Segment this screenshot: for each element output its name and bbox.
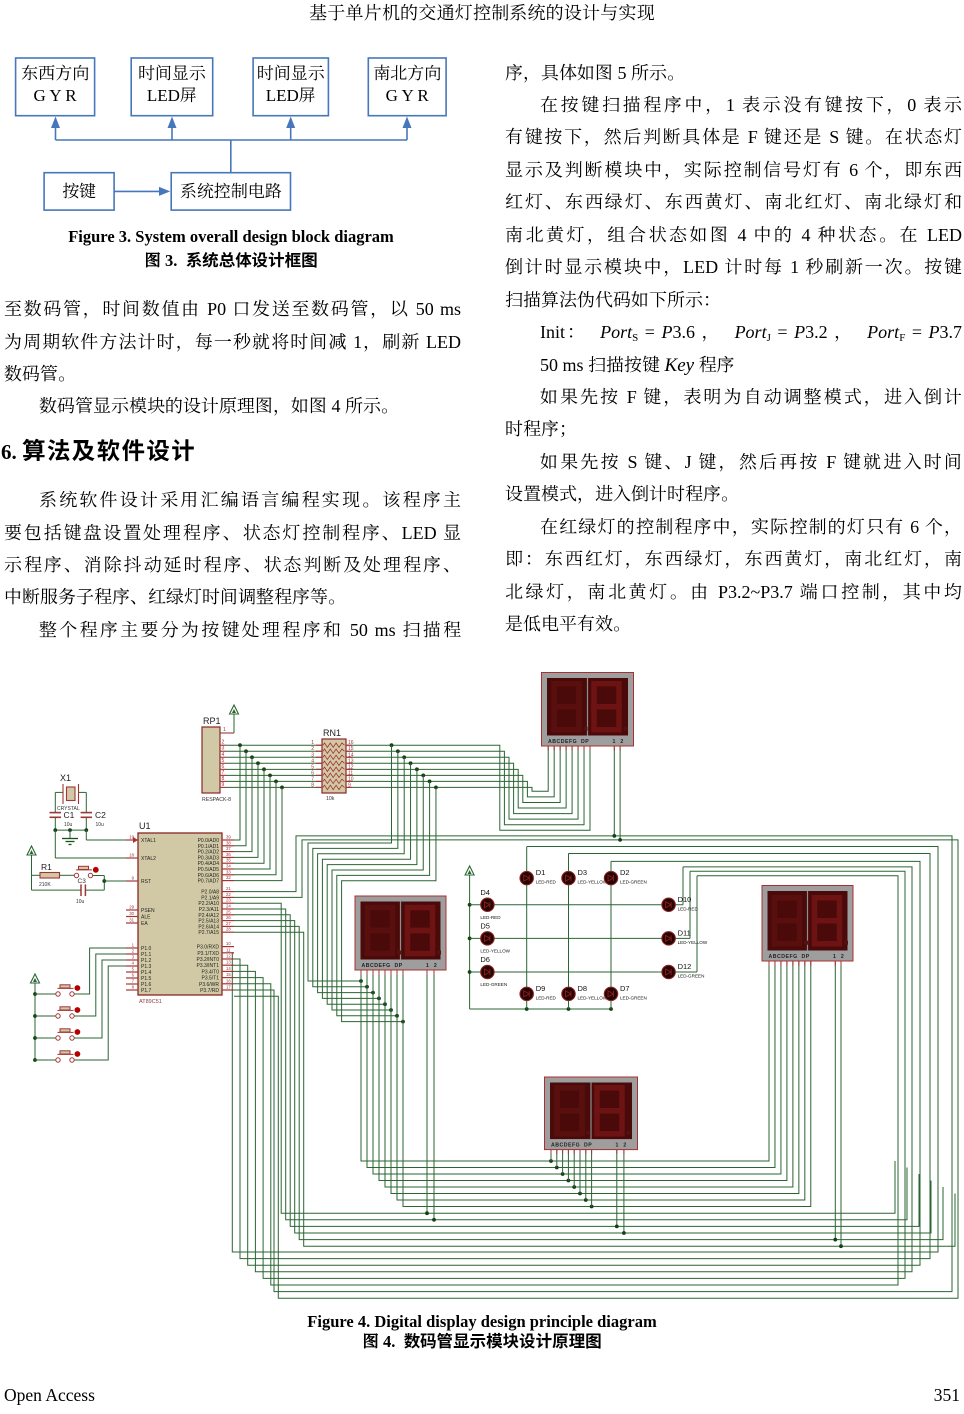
svg-text:26: 26 — [226, 915, 231, 920]
svg-text:ABCDEFG DP: ABCDEFG DP — [551, 1142, 592, 1148]
svg-text:9: 9 — [132, 876, 135, 881]
svg-text:34: 34 — [226, 864, 231, 869]
svg-text:27: 27 — [226, 921, 231, 926]
svg-text:D8: D8 — [578, 984, 588, 993]
svg-text:D12: D12 — [678, 962, 692, 971]
svg-text:P3.2/INT0: P3.2/INT0 — [196, 957, 219, 963]
svg-text:ABCDEFG DP: ABCDEFG DP — [769, 954, 810, 960]
svg-text:D11: D11 — [678, 928, 691, 937]
svg-text:XTAL2: XTAL2 — [141, 856, 156, 862]
svg-text:33: 33 — [226, 869, 231, 874]
svg-text:14: 14 — [226, 966, 231, 971]
svg-text:16: 16 — [226, 978, 231, 983]
svg-text:1: 1 — [223, 727, 226, 733]
svg-text:1 2: 1 2 — [426, 963, 439, 969]
svg-text:D9: D9 — [536, 984, 546, 993]
svg-text:LED-GREEN: LED-GREEN — [620, 880, 647, 885]
svg-text:LED-YELLOW: LED-YELLOW — [578, 880, 608, 885]
svg-text:LED-GREEN: LED-GREEN — [480, 982, 507, 987]
svg-text:5: 5 — [132, 967, 135, 972]
svg-text:P3.6/WR: P3.6/WR — [199, 982, 219, 988]
svg-text:LED-GREEN: LED-GREEN — [620, 995, 647, 1000]
svg-text:7: 7 — [132, 979, 135, 984]
svg-text:6: 6 — [132, 973, 135, 978]
svg-text:38: 38 — [226, 840, 231, 845]
svg-text:32: 32 — [226, 875, 231, 880]
svg-text:3: 3 — [132, 955, 135, 960]
svg-text:4: 4 — [132, 961, 135, 966]
svg-text:23: 23 — [226, 898, 231, 903]
svg-text:U1: U1 — [139, 821, 151, 831]
svg-text:C3: C3 — [78, 878, 87, 885]
svg-text:8: 8 — [132, 985, 135, 990]
svg-text:C2: C2 — [95, 810, 106, 820]
svg-text:RN1: RN1 — [323, 728, 341, 738]
svg-text:10k: 10k — [326, 796, 335, 802]
svg-text:17: 17 — [226, 985, 231, 990]
svg-text:P3.7/RD: P3.7/RD — [200, 988, 219, 994]
svg-text:P3.1/TXD: P3.1/TXD — [197, 951, 219, 957]
svg-text:12: 12 — [226, 954, 231, 959]
svg-text:35: 35 — [226, 858, 231, 863]
svg-text:1 2: 1 2 — [613, 739, 626, 745]
svg-text:13: 13 — [226, 960, 231, 965]
svg-text:31: 31 — [129, 918, 134, 923]
svg-text:RP1: RP1 — [203, 716, 221, 726]
svg-text:10u: 10u — [96, 822, 105, 828]
svg-text:LED-YELLOW: LED-YELLOW — [678, 940, 708, 945]
svg-text:ABCDEFG DP: ABCDEFG DP — [548, 739, 589, 745]
svg-text:P3.4/T0: P3.4/T0 — [201, 969, 219, 975]
svg-text:28: 28 — [226, 927, 231, 932]
svg-text:LED-RED: LED-RED — [678, 906, 699, 911]
svg-text:8: 8 — [311, 782, 314, 788]
svg-text:1: 1 — [132, 943, 135, 948]
svg-text:LED-RED: LED-RED — [536, 880, 557, 885]
svg-text:EA: EA — [141, 921, 148, 927]
svg-text:D7: D7 — [620, 984, 630, 993]
svg-text:24: 24 — [226, 904, 231, 909]
svg-text:11: 11 — [226, 947, 231, 952]
svg-text:10u: 10u — [76, 899, 85, 905]
svg-text:R1: R1 — [41, 862, 52, 872]
svg-text:D4: D4 — [480, 888, 490, 897]
svg-text:LED-RED: LED-RED — [536, 995, 557, 1000]
svg-text:10u: 10u — [64, 822, 73, 828]
svg-text:18: 18 — [129, 853, 134, 858]
svg-text:C1: C1 — [64, 810, 75, 820]
svg-text:1 2: 1 2 — [616, 1142, 629, 1148]
svg-text:15: 15 — [226, 972, 231, 977]
svg-text:P0.7/AD7: P0.7/AD7 — [198, 879, 220, 885]
svg-text:D5: D5 — [480, 921, 490, 930]
svg-text:LED-GREEN: LED-GREEN — [678, 974, 705, 979]
svg-text:LED-RED: LED-RED — [480, 915, 501, 920]
svg-text:210K: 210K — [39, 882, 51, 888]
svg-text:D1: D1 — [536, 868, 546, 877]
svg-text:D6: D6 — [480, 955, 490, 964]
svg-text:P3.5/T1: P3.5/T1 — [201, 976, 219, 982]
svg-text:39: 39 — [226, 835, 231, 840]
svg-text:ALE: ALE — [141, 915, 151, 921]
svg-text:21: 21 — [226, 886, 231, 891]
svg-text:37: 37 — [226, 846, 231, 851]
svg-text:D2: D2 — [620, 868, 630, 877]
svg-text:29: 29 — [129, 905, 134, 910]
svg-text:P2.7/A15: P2.7/A15 — [198, 930, 219, 936]
svg-text:9: 9 — [348, 782, 351, 788]
svg-text:22: 22 — [226, 892, 231, 897]
svg-text:LED-YELLOW: LED-YELLOW — [578, 995, 608, 1000]
svg-text:PSEN: PSEN — [141, 908, 155, 914]
svg-text:XTAL1: XTAL1 — [141, 838, 156, 844]
svg-text:36: 36 — [226, 852, 231, 857]
svg-text:X1: X1 — [60, 773, 71, 783]
svg-text:25: 25 — [226, 909, 231, 914]
svg-text:RST: RST — [141, 879, 151, 885]
svg-text:AT89C51: AT89C51 — [139, 999, 162, 1005]
svg-text:10: 10 — [226, 941, 231, 946]
svg-text:30: 30 — [129, 911, 134, 916]
svg-text:9: 9 — [222, 782, 225, 788]
svg-text:LED-YELLOW: LED-YELLOW — [480, 948, 510, 953]
svg-text:ABCDEFG DP: ABCDEFG DP — [362, 963, 403, 969]
svg-text:D3: D3 — [578, 868, 588, 877]
svg-text:RESPACK-8: RESPACK-8 — [202, 797, 231, 803]
svg-text:D10: D10 — [678, 895, 692, 904]
svg-text:P3.3/INT1: P3.3/INT1 — [196, 963, 219, 969]
svg-text:2: 2 — [132, 949, 135, 954]
svg-text:P1.7: P1.7 — [141, 988, 152, 994]
svg-text:P3.0/RXD: P3.0/RXD — [197, 945, 220, 951]
svg-text:1 2: 1 2 — [833, 954, 846, 960]
